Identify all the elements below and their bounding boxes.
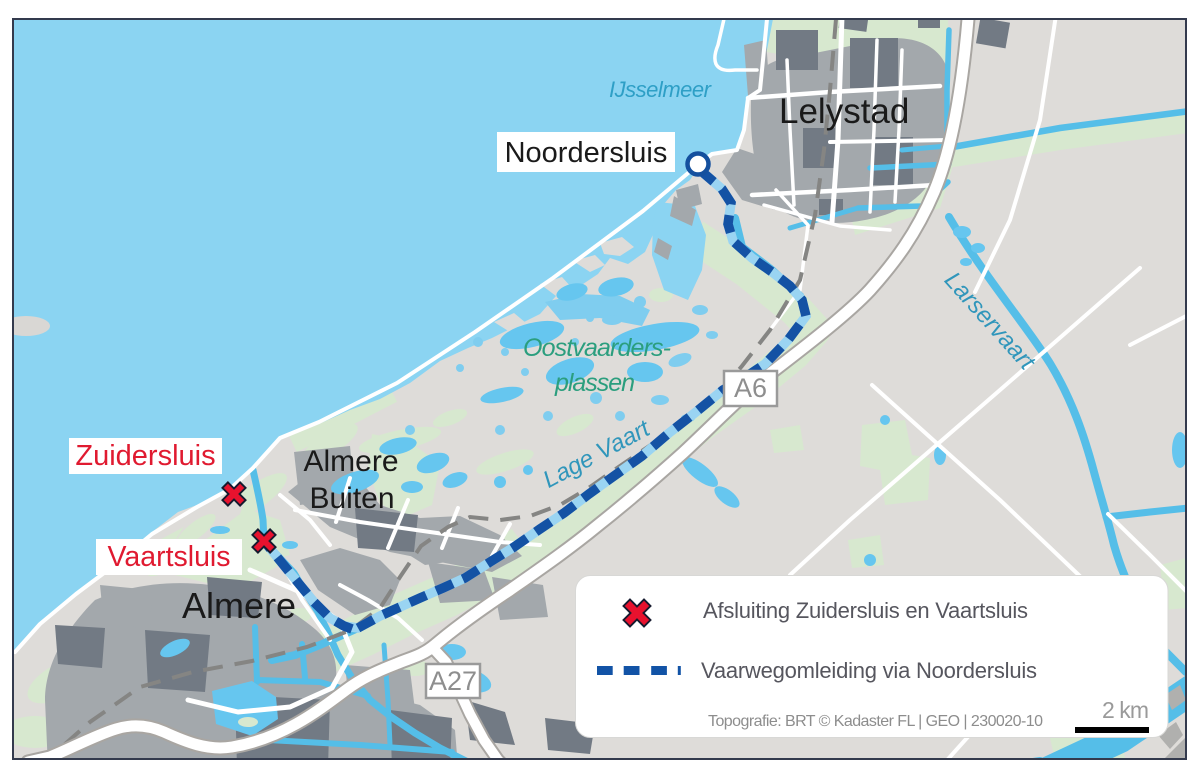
svg-text:Almere: Almere <box>303 445 398 478</box>
svg-text:Lelystad: Lelystad <box>779 92 909 131</box>
svg-text:Noordersluis: Noordersluis <box>505 137 668 169</box>
svg-text:2 km: 2 km <box>1102 697 1149 723</box>
svg-text:Oostvaarders-: Oostvaarders- <box>523 334 671 362</box>
svg-text:Buiten: Buiten <box>309 482 394 515</box>
svg-text:plassen: plassen <box>554 369 635 397</box>
svg-text:IJsselmeer: IJsselmeer <box>609 77 713 102</box>
svg-text:A27: A27 <box>429 666 477 696</box>
svg-text:A6: A6 <box>734 373 767 403</box>
svg-text:Topografie: BRT © Kadaster FL: Topografie: BRT © Kadaster FL | GEO | 23… <box>708 713 1043 730</box>
svg-text:Vaartsluis: Vaartsluis <box>107 541 230 573</box>
svg-text:Zuidersluis: Zuidersluis <box>75 440 215 472</box>
svg-text:Afsluiting Zuidersluis en Vaar: Afsluiting Zuidersluis en Vaartsluis <box>703 598 1028 623</box>
svg-text:Almere: Almere <box>182 585 296 626</box>
svg-text:Vaarwegomleiding via Noordersl: Vaarwegomleiding via Noordersluis <box>701 658 1037 683</box>
